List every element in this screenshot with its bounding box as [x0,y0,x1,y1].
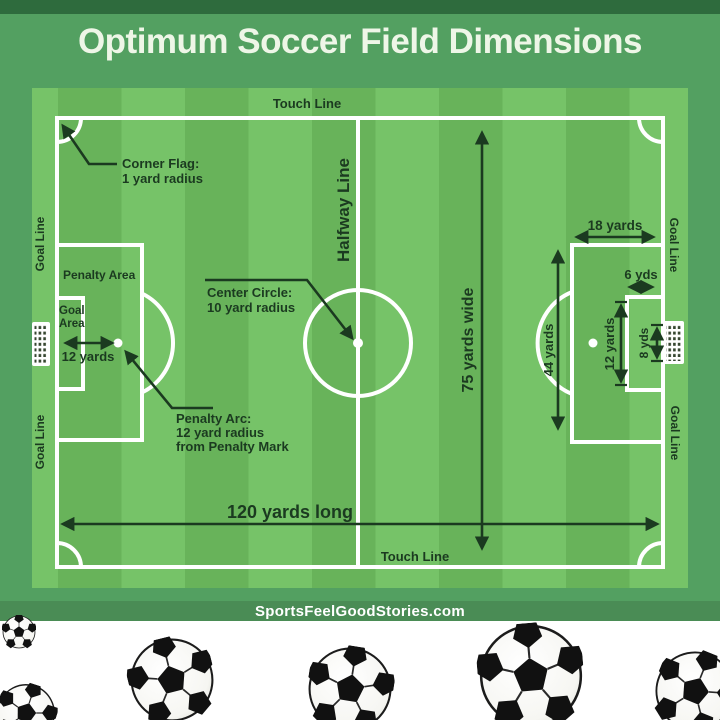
label-44-yards: 44 yards [541,324,556,377]
label-goal-line-bottom-right: Goal Line [668,406,682,461]
label-penalty-arc-1: Penalty Arc: [176,411,251,426]
penalty-mark-left [114,339,123,348]
label-12-yards-right: 12 yards [602,318,617,371]
label-12-yards-left: 12 yards [62,349,115,364]
label-8-yds: 8 yds [637,327,651,358]
soccer-ball-icon [301,640,399,720]
label-goal-line-bottom-left: Goal Line [33,414,47,469]
goal-right [663,321,684,364]
label-6-yds: 6 yds [624,267,657,282]
website-text: SportsFeelGoodStories.com [255,603,465,620]
label-120-yards-long: 120 yards long [227,502,353,522]
label-goal-line-top-left: Goal Line [33,216,47,271]
soccer-field-infographic: Optimum Soccer Field Dimensions [0,0,720,720]
label-halfway-line: Halfway Line [334,158,353,262]
goal-left [32,322,50,366]
center-mark [353,338,363,348]
label-goal-line-top-right: Goal Line [667,218,681,273]
soccer-ball-icon [2,615,36,649]
label-center-circle-1: Center Circle: [207,285,292,300]
label-touch-line-top: Touch Line [273,96,341,111]
label-goal-area-1: Goal [59,305,85,317]
label-center-circle-2: 10 yard radius [207,300,295,315]
label-goal-area-2: Area [59,318,85,330]
soccer-ball-icon [474,619,589,720]
label-touch-line-bottom: Touch Line [381,549,449,564]
label-penalty-arc-3: from Penalty Mark [176,439,289,454]
label-corner-flag-2: 1 yard radius [122,171,203,186]
label-penalty-arc-2: 12 yard radius [176,425,264,440]
label-75-yards-wide: 75 yards wide [460,287,477,392]
label-corner-flag-1: Corner Flag: [122,156,199,171]
penalty-mark-right [589,339,598,348]
label-18-yards: 18 yards [588,218,643,233]
label-penalty-area: Penalty Area [63,268,136,282]
footer-bar: SportsFeelGoodStories.com [0,601,720,621]
